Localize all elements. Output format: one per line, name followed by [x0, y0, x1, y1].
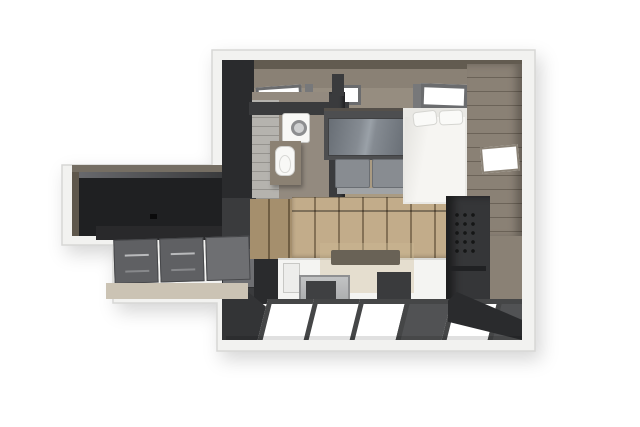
sofa-front-edge: [337, 188, 405, 194]
wing-drawer-cabinets: [101, 236, 250, 289]
drawer-unit: [113, 239, 158, 284]
window: [480, 144, 520, 173]
glass-top-table: [324, 108, 409, 160]
toilet-bowl: [279, 155, 291, 173]
faucet-icon: [150, 214, 157, 219]
wing-left-sliver: [72, 172, 79, 236]
washing-machine: [282, 113, 310, 143]
toilet: [275, 146, 295, 176]
wing-floor: [106, 283, 248, 299]
knob-dots-icon: [454, 212, 478, 256]
glass-panel: [328, 118, 405, 156]
counter-rail: [72, 172, 222, 178]
unit-shelf-line: [450, 266, 486, 271]
washer-door-icon: [291, 120, 307, 136]
apartment-render: [0, 0, 640, 427]
bed: [403, 108, 467, 204]
drawer-handle-icon: [125, 254, 149, 257]
skylight-icon: [420, 83, 469, 110]
pillow: [412, 110, 438, 128]
south-wall-shadow: [226, 336, 522, 340]
pantry-wood-cabinets: [250, 199, 292, 259]
partition-wall-upper: [332, 74, 344, 96]
cabinet-door: [205, 236, 250, 281]
bed-duvet: [405, 117, 465, 202]
pillow: [439, 109, 464, 125]
island-sink: [283, 263, 300, 293]
drawer-handle-icon: [171, 268, 195, 271]
drawer-handle-icon: [171, 252, 195, 255]
right-wall-strip: [490, 236, 522, 302]
wing-north-edge: [72, 165, 222, 172]
sofa-cushion: [372, 159, 407, 188]
sofa: [335, 159, 407, 195]
drawer-handle-icon: [125, 270, 149, 273]
sofa-cushion: [335, 159, 370, 188]
nw-wall-strip: [222, 60, 254, 206]
drawer-unit: [159, 237, 204, 282]
